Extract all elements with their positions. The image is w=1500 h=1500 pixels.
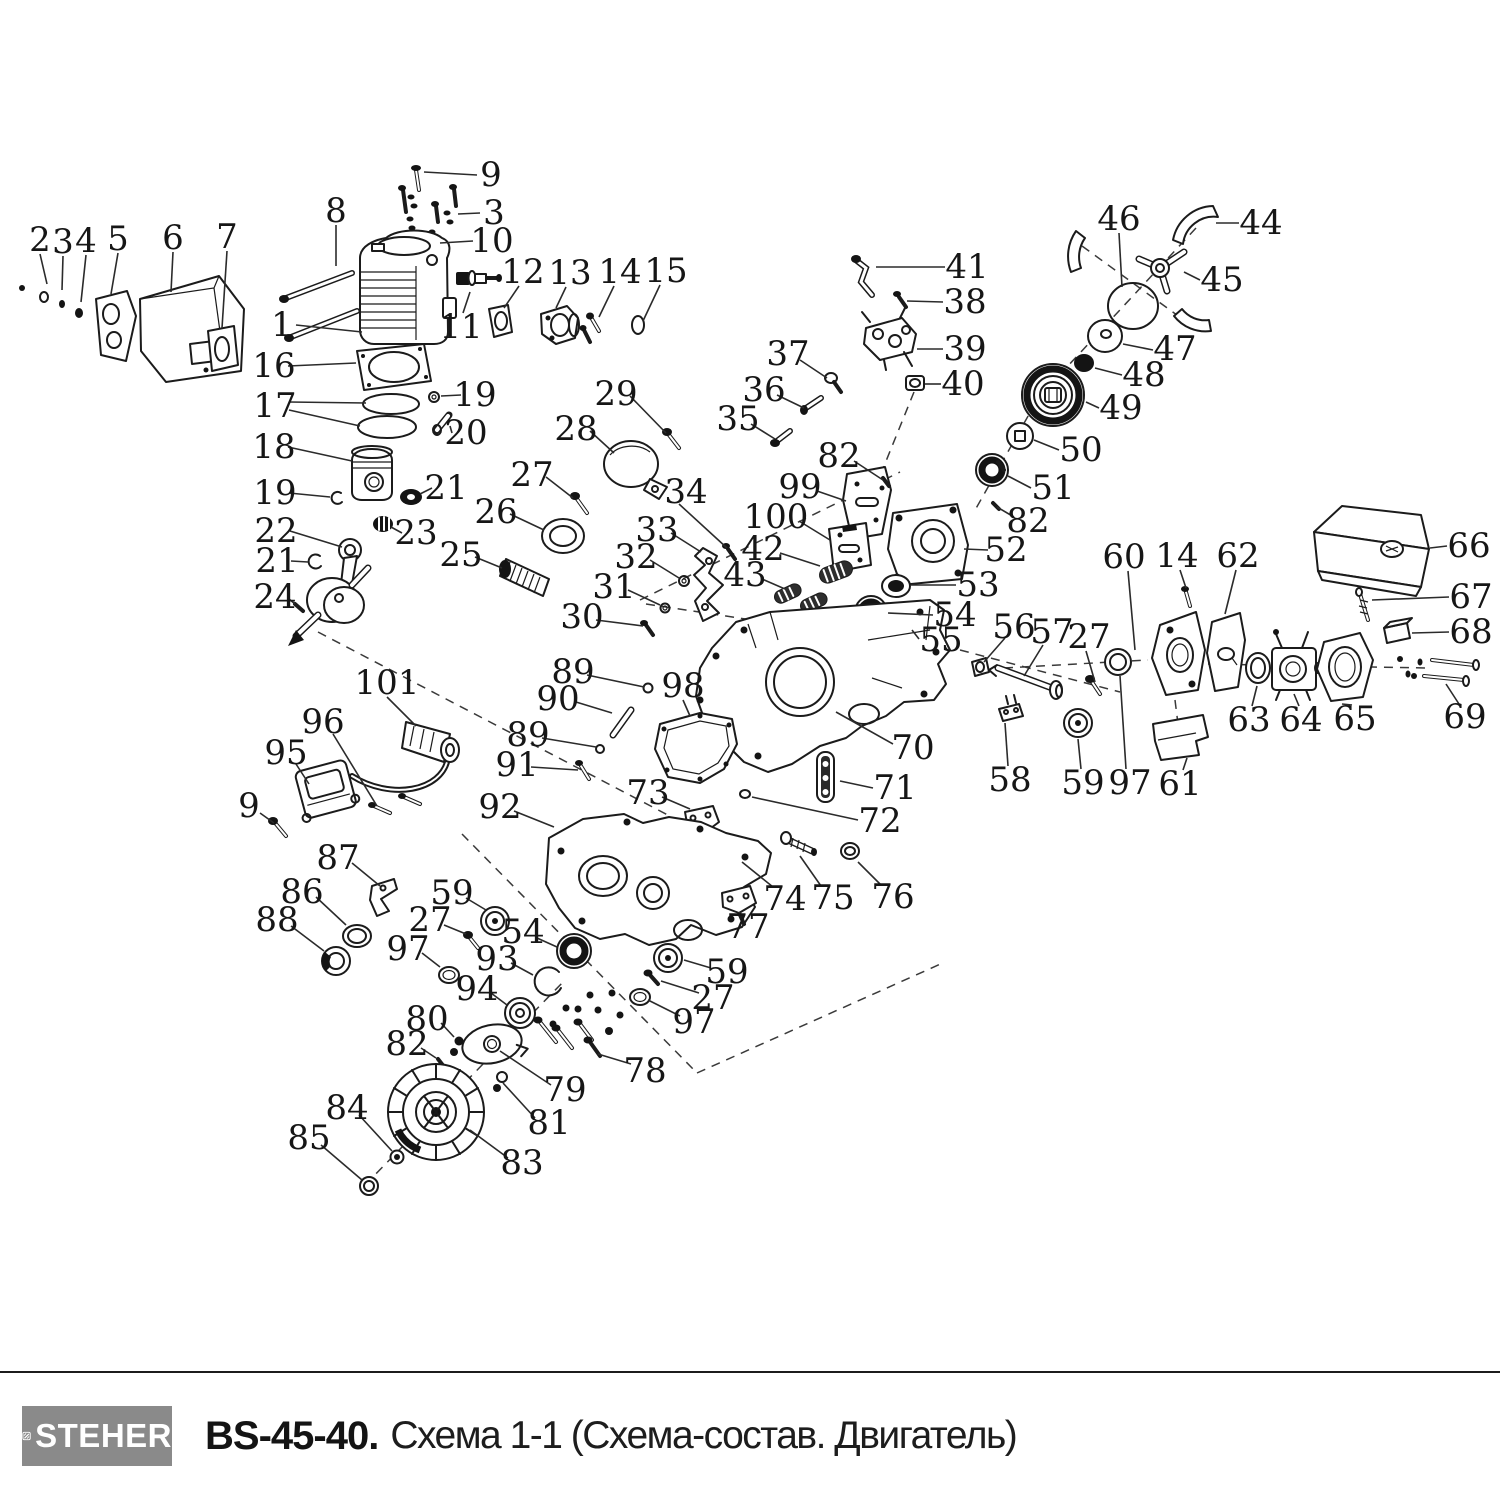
part-number: 68 [1449, 612, 1492, 652]
leader-line [289, 402, 366, 403]
part-number: 98 [661, 666, 704, 706]
leader-line [288, 447, 352, 461]
part-label-70: 70 [836, 712, 935, 768]
part-number: 90 [536, 679, 579, 719]
part-number: 8 [325, 191, 347, 231]
leader-line [1123, 344, 1153, 350]
leader-line [1412, 632, 1449, 633]
part-number: 7 [216, 217, 238, 257]
part-label-65: 65 [1333, 699, 1376, 739]
part-label-25: 25 [439, 535, 502, 575]
part-number: 75 [811, 878, 854, 918]
part-label-77: 77 [726, 907, 769, 947]
part-number: 13 [548, 253, 591, 293]
part-number: 39 [943, 329, 986, 369]
part-label-19: 19 [253, 473, 330, 513]
part-number: 69 [1443, 697, 1486, 737]
part-label-84: 84 [325, 1088, 392, 1151]
part-number: 2 [29, 220, 51, 260]
part-label-21: 21 [420, 468, 468, 508]
leader-line [1008, 476, 1031, 488]
part-number: 25 [439, 535, 482, 575]
part-label-40: 40 [925, 364, 985, 404]
part-number: 46 [1097, 199, 1140, 239]
part-label-57: 57 [1024, 612, 1074, 676]
part-label-91: 91 [495, 745, 578, 785]
part-label-76: 76 [858, 862, 915, 917]
part-number: 70 [891, 728, 934, 768]
part-number: 99 [778, 467, 821, 507]
part-number: 19 [253, 473, 296, 513]
brand-logo-icon [22, 1417, 31, 1455]
part-label-41: 41 [876, 247, 989, 287]
part-number: 20 [444, 413, 487, 453]
part-number: 65 [1333, 699, 1376, 739]
muffler-drawing [19, 276, 244, 382]
part-label-9: 9 [238, 786, 274, 826]
part-number: 84 [325, 1088, 368, 1128]
part-label-56: 56 [984, 607, 1036, 662]
part-label-39: 39 [917, 329, 987, 369]
part-number: 21 [255, 541, 298, 581]
part-number: 66 [1447, 526, 1490, 566]
part-number: 14 [1155, 536, 1198, 576]
part-number: 64 [1279, 700, 1322, 740]
part-label-68: 68 [1412, 612, 1493, 652]
part-label-69: 69 [1443, 684, 1486, 737]
part-label-21: 21 [255, 541, 308, 581]
part-label-52: 52 [964, 530, 1028, 570]
leader-line [1086, 402, 1099, 408]
part-number: 59 [1061, 763, 1104, 803]
part-number: 97 [386, 929, 429, 969]
part-number: 77 [726, 907, 769, 947]
part-number: 6 [162, 218, 184, 258]
part-label-55: 55 [912, 620, 963, 660]
part-label-18: 18 [252, 427, 352, 467]
part-label-16: 16 [252, 346, 356, 386]
part-label-46: 46 [1097, 199, 1140, 287]
leader-line [1184, 272, 1200, 280]
part-label-29: 29 [594, 374, 666, 433]
part-number: 9 [238, 786, 260, 826]
part-label-28: 28 [554, 409, 614, 453]
leader-line [171, 252, 173, 292]
part-label-79: 79 [500, 1051, 587, 1110]
leader-line [424, 172, 477, 175]
crankshaft-drawing [288, 539, 368, 646]
carburetor-drawing [1272, 629, 1321, 700]
part-number: 50 [1059, 430, 1102, 470]
part-label-6: 6 [162, 218, 184, 292]
part-number: 23 [394, 513, 437, 553]
part-label-27: 27 [1067, 617, 1110, 682]
part-number: 9 [480, 155, 502, 195]
part-number: 74 [763, 879, 806, 919]
part-number: 27 [510, 455, 553, 495]
leader-line [1120, 676, 1126, 769]
part-label-3: 3 [52, 222, 74, 290]
part-number: 63 [1227, 700, 1270, 740]
part-number: 17 [253, 386, 296, 426]
part-number: 15 [644, 251, 687, 291]
part-label-87: 87 [316, 838, 380, 886]
part-number: 62 [1216, 536, 1259, 576]
brand-logo: STEHER [22, 1406, 172, 1466]
part-number: 67 [1449, 577, 1492, 617]
leader-line [752, 797, 858, 820]
part-number: 81 [527, 1103, 570, 1143]
part-number: 11 [439, 307, 482, 347]
part-number: 58 [988, 760, 1031, 800]
part-number: 12 [501, 252, 544, 292]
part-number: 91 [495, 745, 538, 785]
part-label-38: 38 [907, 282, 987, 322]
part-number: 85 [287, 1118, 330, 1158]
part-number: 76 [871, 877, 914, 917]
part-label-97: 97 [648, 1000, 716, 1042]
part-label-45: 45 [1184, 260, 1244, 300]
leader-line [1119, 233, 1122, 287]
leader-line [81, 255, 86, 302]
leader-line [1225, 570, 1236, 614]
part-label-62: 62 [1216, 536, 1259, 614]
part-label-78: 78 [598, 1051, 667, 1091]
part-number: 94 [455, 969, 498, 1009]
model-code: BS-45-40. [205, 1414, 378, 1459]
part-label-5: 5 [107, 219, 129, 294]
part-number: 35 [716, 399, 759, 439]
part-number: 72 [858, 801, 901, 841]
leader-line [840, 781, 873, 788]
exploded-diagram: 2345678931011112131415161718192021192223… [0, 0, 1500, 1372]
part-label-66: 66 [1430, 526, 1491, 566]
clutch-drum [1022, 364, 1084, 426]
part-number: 5 [107, 219, 129, 259]
leader-line [458, 213, 480, 214]
part-label-20: 20 [444, 413, 487, 453]
page-title: BS-45-40. Схема 1-1 (Схема-состав. Двига… [205, 1406, 1016, 1466]
part-label-19: 19 [441, 375, 497, 415]
leader-line [542, 738, 596, 747]
part-number: 27 [1067, 617, 1110, 657]
part-label-27: 27 [510, 455, 573, 498]
part-label-2: 2 [29, 220, 51, 284]
part-number: 95 [264, 733, 307, 773]
leader-line [289, 410, 360, 426]
part-number: 82 [385, 1024, 428, 1064]
part-number: 37 [766, 334, 809, 374]
part-label-15: 15 [643, 251, 688, 321]
part-number: 45 [1200, 260, 1243, 300]
part-label-64: 64 [1279, 694, 1322, 740]
part-label-82: 82 [385, 1024, 436, 1064]
part-number: 38 [943, 282, 986, 322]
part-number: 52 [984, 530, 1027, 570]
part-number: 28 [554, 409, 597, 449]
leader-line [111, 253, 118, 294]
leader-line [576, 702, 612, 713]
leader-line [780, 553, 820, 566]
part-label-75: 75 [800, 856, 855, 918]
part-label-63: 63 [1227, 686, 1270, 740]
part-label-92: 92 [478, 787, 554, 827]
part-label-26: 26 [474, 492, 544, 532]
spark-plug-drawing [456, 271, 502, 285]
part-number: 51 [1031, 468, 1074, 508]
part-number: 4 [75, 221, 97, 261]
part-number: 21 [424, 468, 467, 508]
part-label-90: 90 [536, 679, 612, 719]
part-number: 3 [52, 222, 74, 262]
part-label-14: 14 [598, 252, 641, 317]
part-number: 97 [672, 1002, 715, 1042]
part-label-44: 44 [1216, 203, 1283, 243]
part-number: 88 [255, 900, 298, 940]
leader-line [1430, 546, 1447, 548]
part-number: 16 [252, 346, 295, 386]
footer-divider [0, 1371, 1500, 1373]
part-number: 34 [664, 472, 707, 512]
part-number: 101 [355, 663, 420, 703]
part-number: 14 [598, 252, 641, 292]
part-number: 26 [474, 492, 517, 532]
part-label-14: 14 [1155, 536, 1198, 588]
part-number: 29 [594, 374, 637, 414]
part-label-24: 24 [253, 577, 296, 617]
part-number: 60 [1102, 537, 1145, 577]
part-label-101: 101 [355, 663, 420, 726]
part-label-4: 4 [75, 221, 97, 302]
part-label-8: 8 [325, 191, 347, 266]
part-number: 83 [500, 1143, 543, 1183]
leader-line [907, 301, 943, 302]
part-label-72: 72 [752, 797, 902, 841]
part-number: 19 [453, 375, 496, 415]
part-label-50: 50 [1034, 430, 1103, 470]
part-label-23: 23 [391, 513, 438, 553]
part-number: 61 [1158, 764, 1201, 804]
air-filter-base-drawing [1314, 506, 1429, 596]
part-number: 30 [560, 597, 603, 637]
part-label-97: 97 [1108, 676, 1151, 803]
part-number: 78 [623, 1051, 666, 1091]
part-label-58: 58 [988, 723, 1031, 800]
part-label-49: 49 [1086, 388, 1143, 428]
part-number: 82 [817, 436, 860, 476]
part-number: 49 [1099, 388, 1142, 428]
part-label-17: 17 [253, 386, 366, 426]
part-number: 43 [723, 555, 766, 595]
part-label-13: 13 [548, 253, 591, 308]
part-number: 18 [252, 427, 295, 467]
part-number: 24 [253, 577, 296, 617]
part-number: 97 [1108, 763, 1151, 803]
part-label-82: 82 [817, 436, 883, 480]
part-number: 73 [626, 773, 669, 813]
leader-line [1128, 571, 1135, 650]
leader-line [1095, 368, 1122, 375]
leader-line [288, 363, 356, 366]
part-number: 96 [301, 702, 344, 742]
brand-name: STEHER [35, 1417, 172, 1455]
part-label-12: 12 [501, 252, 544, 308]
leader-line [1372, 597, 1449, 600]
flywheel-drawing [388, 1064, 484, 1160]
leader-line [587, 675, 644, 687]
leader-line [1034, 440, 1059, 450]
part-number: 92 [478, 787, 521, 827]
part-number: 1 [271, 305, 293, 345]
part-number: 55 [919, 620, 962, 660]
schema-title: Схема 1-1 (Схема-состав. Двигатель) [390, 1414, 1016, 1458]
part-number: 40 [941, 364, 984, 404]
part-number: 41 [945, 247, 988, 287]
part-label-59: 59 [1061, 739, 1104, 803]
bolts-69-drawing [1397, 656, 1479, 686]
part-label-61: 61 [1158, 758, 1201, 804]
part-number: 44 [1239, 203, 1282, 243]
part-number: 56 [992, 607, 1035, 647]
part-label-9: 9 [424, 155, 502, 195]
part-label-98: 98 [661, 666, 704, 716]
